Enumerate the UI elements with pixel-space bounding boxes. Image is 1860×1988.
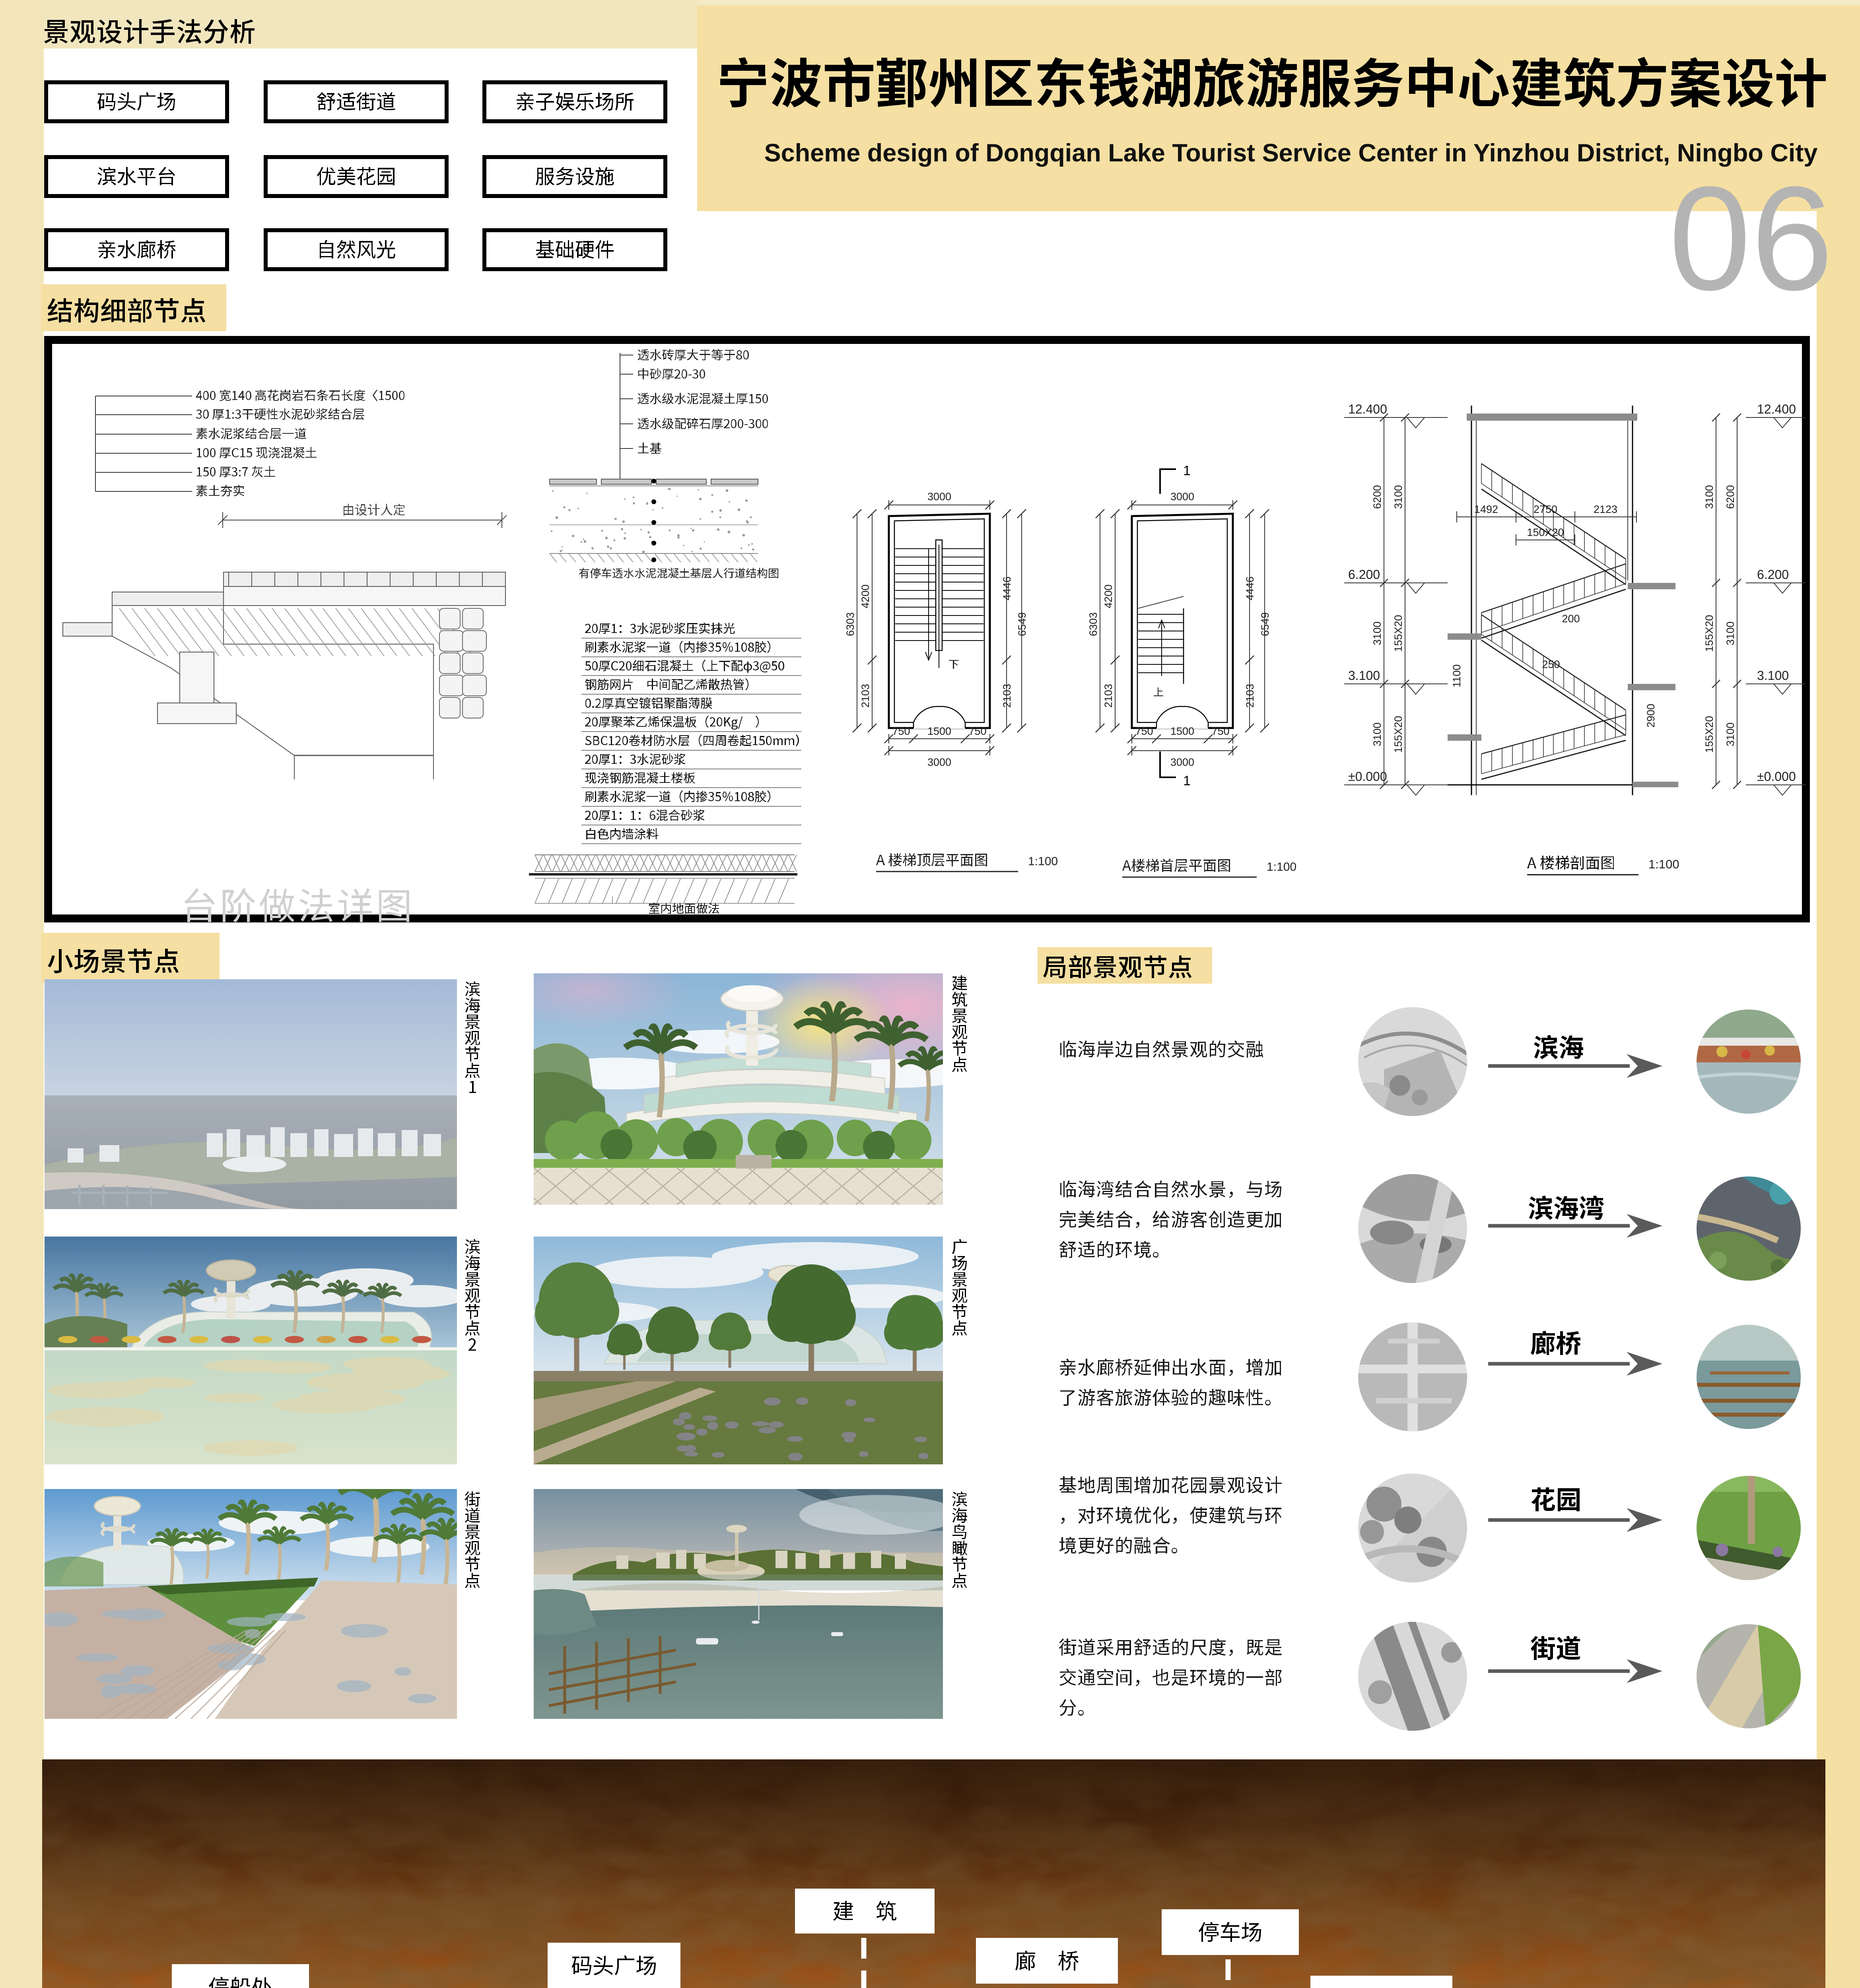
svg-text:2103: 2103	[1244, 684, 1256, 708]
svg-text:4446: 4446	[1001, 577, 1013, 600]
svg-text:3100: 3100	[1703, 485, 1715, 509]
svg-text:155X20: 155X20	[1703, 716, 1715, 753]
svg-text:3000: 3000	[927, 756, 951, 768]
svg-text:3000: 3000	[1170, 491, 1194, 503]
svg-text:3100: 3100	[1392, 485, 1404, 509]
svg-text:06: 06	[1669, 155, 1833, 321]
svg-text:2103: 2103	[1102, 684, 1114, 708]
svg-text:4200: 4200	[859, 584, 871, 608]
svg-text:4446: 4446	[1244, 577, 1256, 600]
svg-text:2103: 2103	[1001, 684, 1013, 708]
svg-text:Scheme design of Dongqian Lake: Scheme design of Dongqian Lake Tourist S…	[764, 139, 1818, 167]
svg-text:6200: 6200	[1724, 485, 1736, 509]
svg-text:6303: 6303	[1087, 612, 1099, 636]
svg-text:150X20: 150X20	[1527, 526, 1564, 538]
svg-text:1500: 1500	[1170, 725, 1194, 737]
svg-text:3.100: 3.100	[1348, 668, 1380, 683]
svg-text:6200: 6200	[1371, 485, 1383, 509]
svg-text:1:100: 1:100	[1267, 860, 1296, 874]
svg-text:2103: 2103	[859, 684, 871, 708]
svg-text:1100: 1100	[1451, 664, 1463, 687]
svg-text:750: 750	[1135, 725, 1153, 737]
svg-text:3100: 3100	[1371, 722, 1383, 746]
svg-text:2750: 2750	[1533, 503, 1557, 515]
svg-text:155X20: 155X20	[1392, 716, 1404, 753]
svg-text:750: 750	[968, 725, 986, 737]
svg-text:3000: 3000	[927, 491, 951, 503]
svg-text:1492: 1492	[1474, 503, 1498, 515]
svg-text:200: 200	[1562, 613, 1580, 625]
svg-text:6549: 6549	[1259, 612, 1271, 636]
svg-text:1: 1	[1183, 463, 1191, 478]
svg-text:3100: 3100	[1724, 621, 1736, 645]
svg-text:155X20: 155X20	[1392, 615, 1404, 652]
svg-text:3.100: 3.100	[1757, 668, 1789, 683]
svg-text:±0.000: ±0.000	[1348, 769, 1387, 784]
svg-text:1500: 1500	[927, 725, 951, 737]
svg-text:12.400: 12.400	[1757, 402, 1796, 416]
svg-text:3000: 3000	[1170, 756, 1194, 768]
svg-text:1:100: 1:100	[1648, 857, 1679, 871]
svg-text:155X20: 155X20	[1703, 615, 1715, 652]
svg-text:750: 750	[892, 725, 910, 737]
svg-text:2123: 2123	[1594, 503, 1617, 515]
svg-text:6549: 6549	[1016, 612, 1028, 636]
svg-text:250: 250	[1542, 658, 1560, 670]
svg-text:12.400: 12.400	[1348, 402, 1387, 416]
svg-text:750: 750	[1211, 725, 1229, 737]
svg-text:±0.000: ±0.000	[1757, 769, 1796, 784]
svg-text:1: 1	[1183, 773, 1191, 788]
svg-text:6.200: 6.200	[1348, 567, 1380, 582]
svg-text:1:100: 1:100	[1028, 855, 1058, 868]
svg-text:3100: 3100	[1371, 621, 1383, 645]
svg-text:6303: 6303	[844, 612, 856, 636]
svg-text:3100: 3100	[1724, 722, 1736, 746]
svg-text:4200: 4200	[1102, 584, 1114, 608]
svg-text:6.200: 6.200	[1757, 567, 1789, 582]
svg-text:2900: 2900	[1645, 704, 1657, 728]
